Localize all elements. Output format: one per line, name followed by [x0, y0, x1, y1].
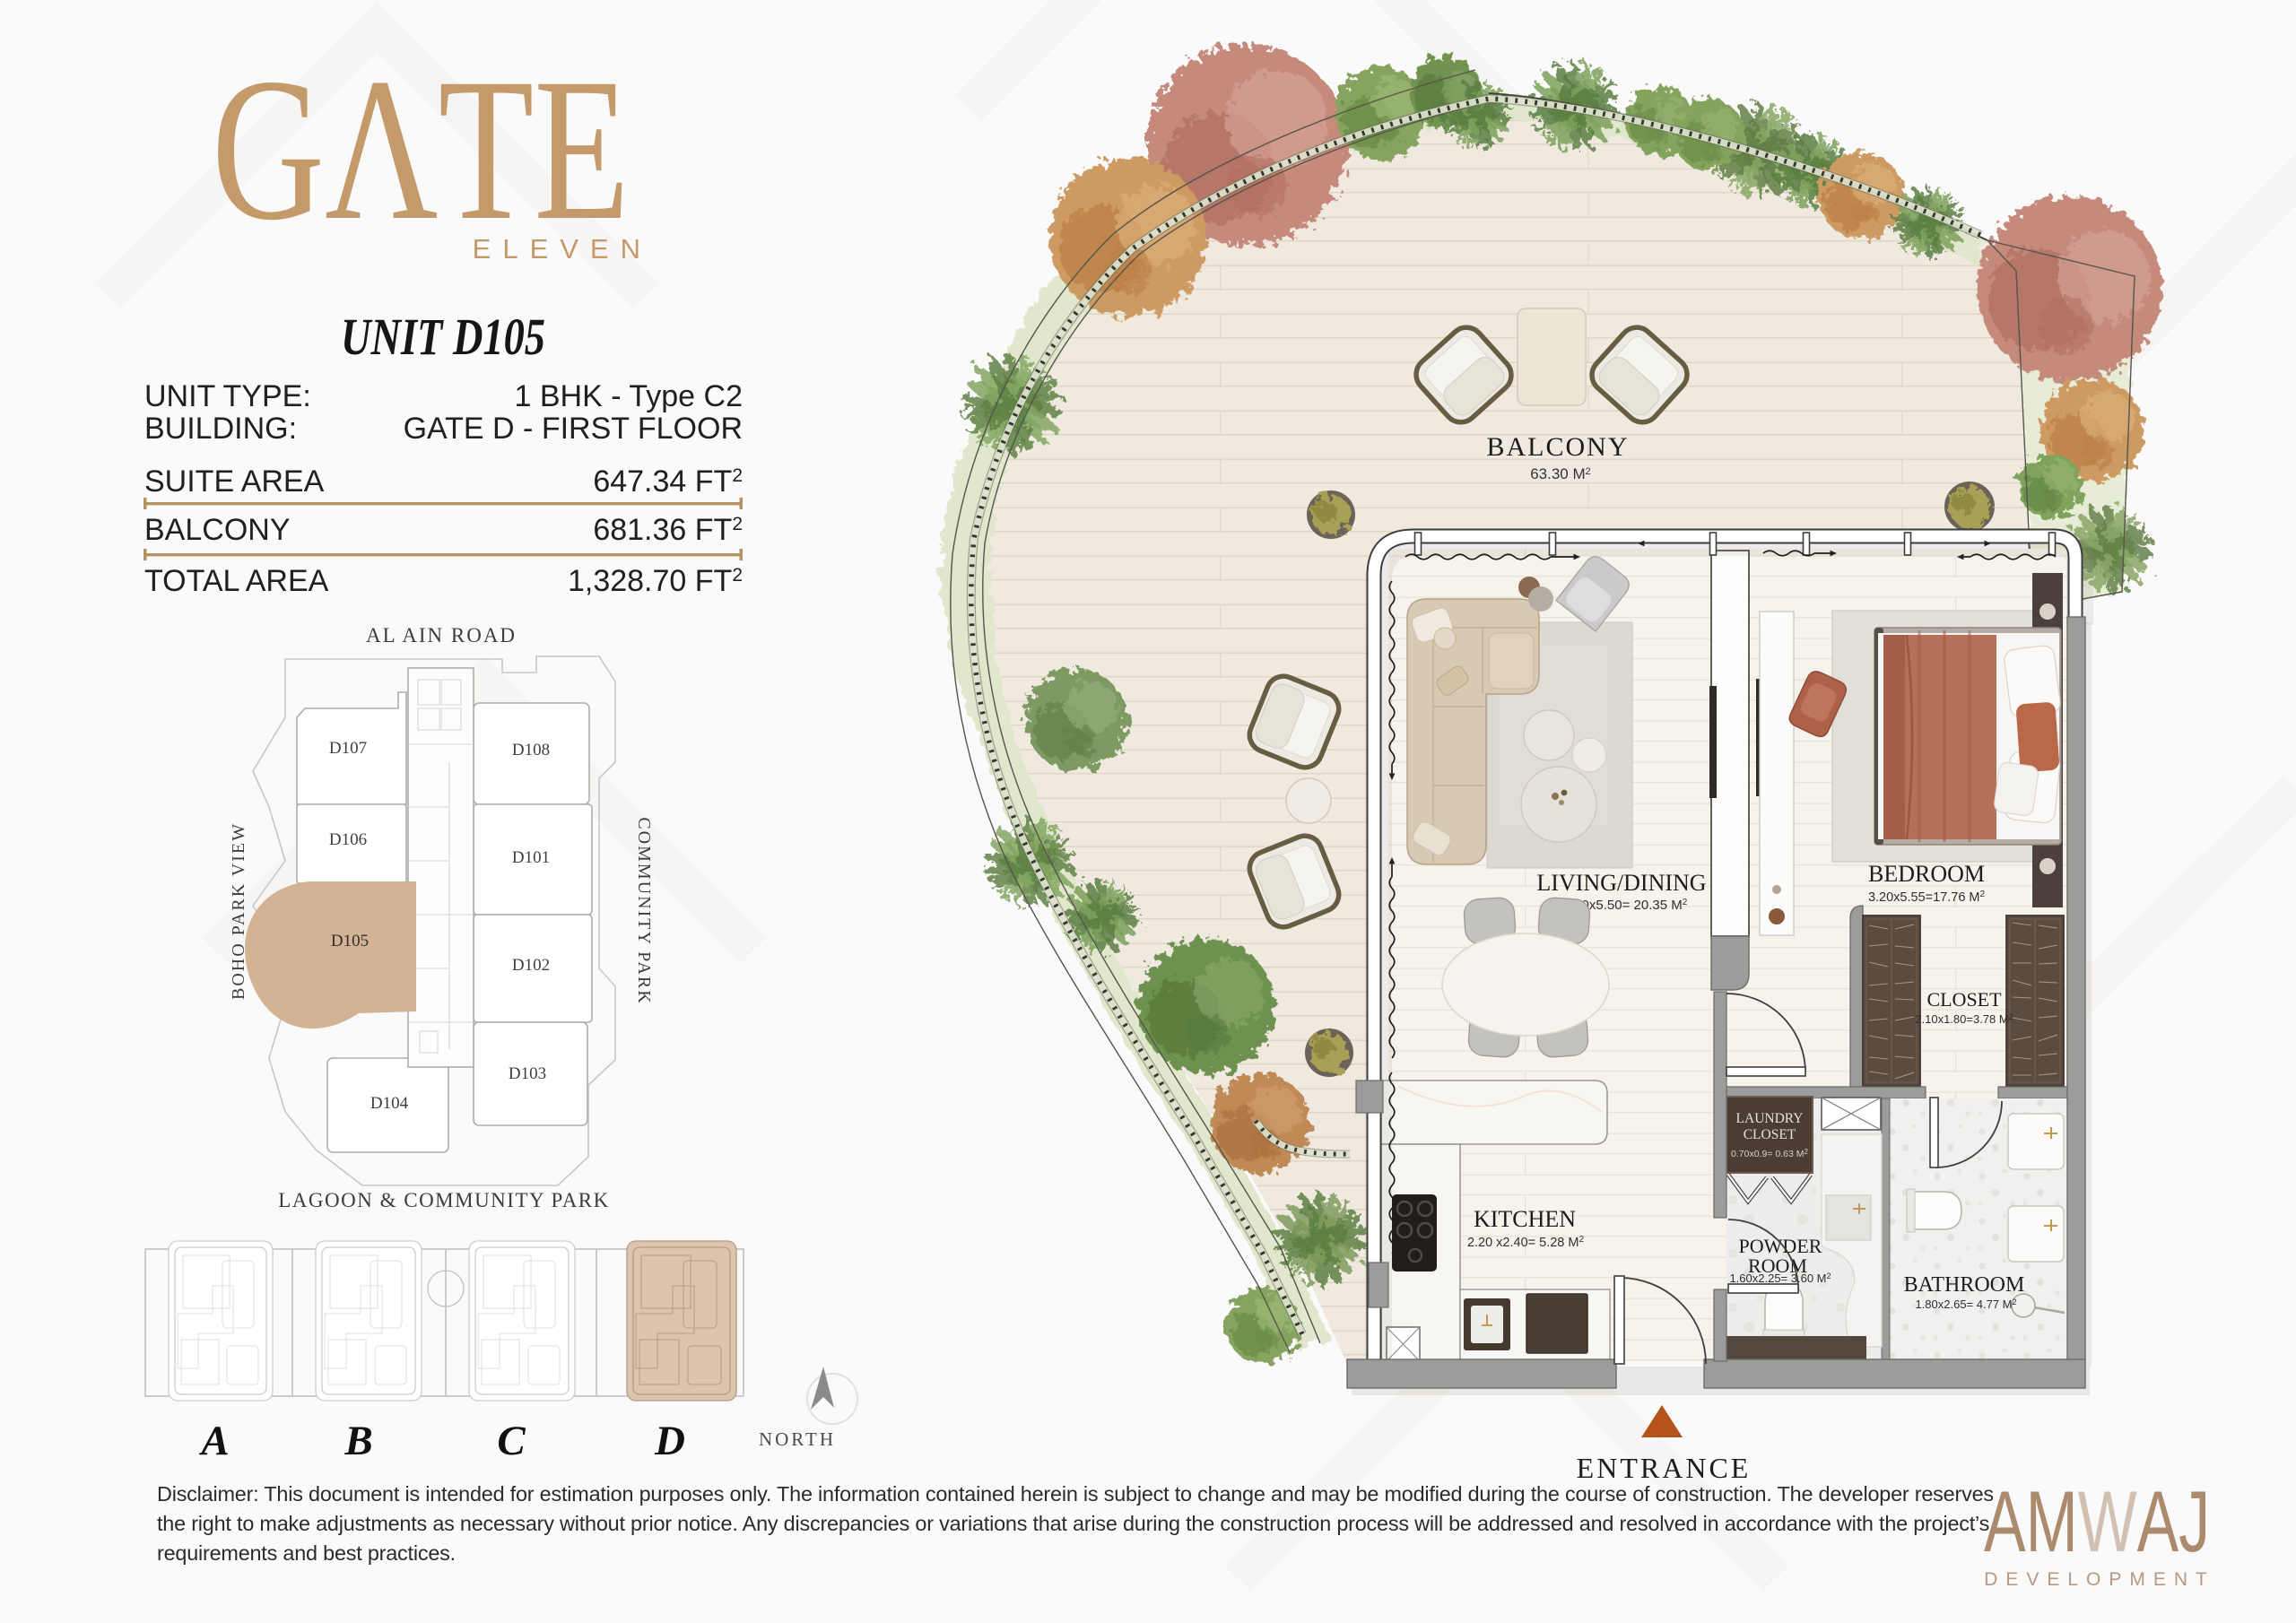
- svg-text:AL AIN ROAD: AL AIN ROAD: [366, 624, 517, 647]
- svg-text:BEDROOM: BEDROOM: [1868, 861, 1985, 887]
- svg-text:0.70x0.9= 0.63 M2: 0.70x0.9= 0.63 M2: [1731, 1148, 1808, 1159]
- svg-text:UNIT D105: UNIT D105: [341, 308, 545, 366]
- svg-text:D107: D107: [329, 739, 367, 758]
- svg-text:D104: D104: [370, 1094, 409, 1113]
- svg-text:D105: D105: [331, 932, 369, 950]
- svg-text:D108: D108: [512, 741, 550, 759]
- svg-text:GΛTE: GΛTE: [212, 37, 630, 263]
- svg-text:BALCONY: BALCONY: [1486, 432, 1629, 462]
- svg-text:C: C: [497, 1418, 526, 1464]
- svg-text:LIVING/DINING: LIVING/DINING: [1536, 870, 1706, 896]
- svg-text:681.36 FT2: 681.36 FT2: [593, 513, 743, 547]
- svg-text:D106: D106: [329, 830, 367, 849]
- svg-text:NORTH: NORTH: [759, 1428, 836, 1450]
- svg-text:BATHROOM: BATHROOM: [1904, 1273, 2025, 1297]
- svg-text:LAUNDRY: LAUNDRY: [1736, 1111, 1804, 1126]
- svg-text:the right to make adjustments: the right to make adjustments as necessa…: [157, 1512, 1989, 1535]
- svg-text:BALCONY: BALCONY: [144, 513, 291, 547]
- svg-text:1,328.70 FT2: 1,328.70 FT2: [568, 564, 743, 598]
- svg-text:A: A: [198, 1418, 229, 1464]
- svg-text:647.34 FT2: 647.34 FT2: [593, 464, 743, 499]
- svg-text:1.60x2.25= 3.60 M2: 1.60x2.25= 3.60 M2: [1729, 1271, 1831, 1285]
- svg-text:Disclaimer: This document is i: Disclaimer: This document is intended fo…: [157, 1482, 1994, 1506]
- svg-text:2.20 x2.40= 5.28 M2: 2.20 x2.40= 5.28 M2: [1467, 1235, 1585, 1250]
- svg-text:COMMUNITY PARK: COMMUNITY PARK: [634, 817, 654, 1004]
- svg-text:BUILDING:: BUILDING:: [144, 412, 297, 446]
- svg-text:1 BHK - Type C2: 1 BHK - Type C2: [515, 379, 744, 413]
- svg-text:D102: D102: [512, 956, 550, 975]
- svg-text:B: B: [344, 1418, 372, 1464]
- svg-text:CLOSET: CLOSET: [1744, 1127, 1796, 1142]
- svg-text:D103: D103: [509, 1064, 546, 1083]
- svg-text:GATE D - FIRST FLOOR: GATE D - FIRST FLOOR: [404, 412, 743, 446]
- svg-text:3.20x5.55=17.76 M2: 3.20x5.55=17.76 M2: [1868, 890, 1986, 905]
- svg-text:TOTAL AREA: TOTAL AREA: [144, 564, 329, 598]
- svg-text:2.10x1.80=3.78 M2: 2.10x1.80=3.78 M2: [1915, 1012, 2013, 1026]
- svg-text:ELEVEN: ELEVEN: [473, 233, 652, 265]
- svg-text:D101: D101: [512, 848, 550, 867]
- svg-text:BOHO PARK VIEW: BOHO PARK VIEW: [229, 822, 248, 1000]
- svg-text:1.80x2.65= 4.77 M2: 1.80x2.65= 4.77 M2: [1915, 1298, 2016, 1311]
- svg-text:CLOSET: CLOSET: [1926, 988, 2002, 1011]
- svg-text:SUITE AREA: SUITE AREA: [144, 464, 325, 499]
- svg-text:AMWAJ: AMWAJ: [1984, 1472, 2210, 1570]
- svg-text:ENTRANCE: ENTRANCE: [1577, 1452, 1752, 1484]
- svg-text:63.30 M2: 63.30 M2: [1530, 465, 1591, 482]
- svg-text:LAGOON & COMMUNITY PARK: LAGOON & COMMUNITY PARK: [278, 1189, 610, 1211]
- svg-text:DEVELOPMENT: DEVELOPMENT: [1984, 1569, 2215, 1590]
- svg-text:KITCHEN: KITCHEN: [1474, 1206, 1576, 1232]
- svg-text:D: D: [654, 1418, 685, 1464]
- svg-text:UNIT TYPE:: UNIT TYPE:: [144, 379, 311, 413]
- svg-text:requirements and best practice: requirements and best practices.: [157, 1541, 456, 1565]
